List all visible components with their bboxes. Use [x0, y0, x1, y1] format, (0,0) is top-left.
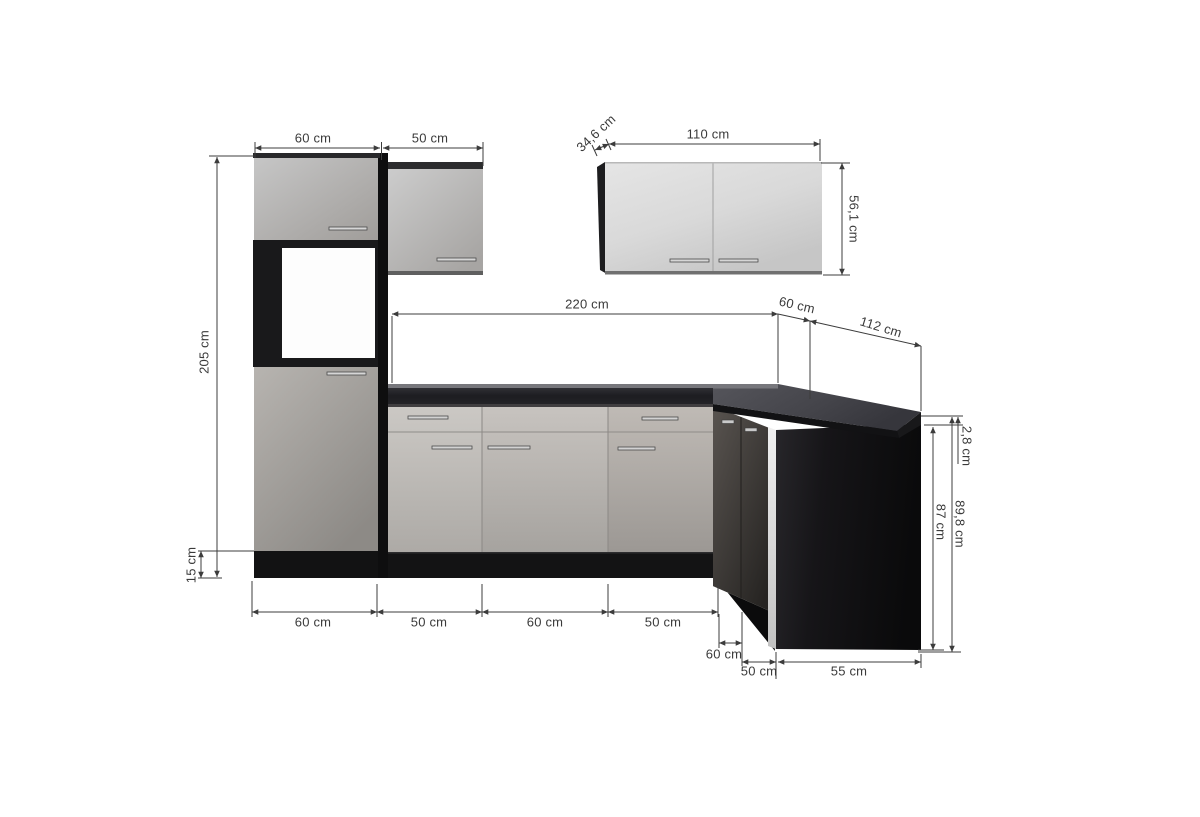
wall-cab-50-door	[388, 169, 483, 272]
corner-unit	[713, 406, 921, 651]
door-handle	[618, 447, 655, 450]
right-side-panel	[776, 424, 921, 650]
dim-label-run-length: 220 cm	[565, 297, 609, 312]
dim-label-base-seg-3: 60 cm	[527, 615, 563, 630]
panel-edge-strip	[768, 427, 776, 649]
dim-label-tall-cab-height: 205 cm	[197, 330, 212, 374]
wall-cab-110-top-line	[605, 162, 822, 164]
tall-cabinet-plinth	[254, 551, 378, 578]
drawer-handle	[642, 417, 678, 420]
dim-label-wall-cab-110-height: 56,1 cm	[847, 195, 862, 243]
tall-cabinet-side-panel	[378, 153, 388, 578]
dim-label-worktop-thickness: 2,8 cm	[960, 426, 975, 466]
base-plinth	[388, 552, 714, 578]
base-cabinet-60-sink	[482, 407, 608, 552]
wall-cab-50-top-edge	[388, 162, 483, 169]
door-handle	[432, 446, 472, 449]
worktop-top-edge	[372, 384, 778, 389]
base-cabinet-50-1	[388, 407, 482, 552]
wall-cabinet-50	[388, 162, 483, 275]
door-handle	[719, 259, 758, 262]
wall-cab-50-bottom-edge	[388, 271, 483, 275]
tall-cabinet-top-edge	[253, 153, 380, 158]
tall-cabinet-lower-door	[254, 367, 378, 551]
dim-label-tall-cab-width: 60 cm	[295, 131, 331, 146]
door-handle	[327, 372, 366, 375]
base-cabinet-run	[388, 404, 714, 578]
base-top-gap	[388, 404, 713, 407]
corner-door-handle	[722, 420, 734, 424]
door-handle	[670, 259, 709, 262]
dim-label-wall-cab-110-width: 110 cm	[687, 127, 730, 142]
dim-label-total-base-height: 89,8 cm	[953, 500, 968, 548]
wall-cabinet-110	[597, 162, 822, 275]
kitchen-dimension-diagram: 60 cm 50 cm 34,6 cm 110 cm 56,1 cm 205 c…	[0, 0, 1200, 817]
dim-label-wall-cab-50-width: 50 cm	[412, 131, 448, 146]
dim-label-base-seg-4: 50 cm	[645, 615, 681, 630]
dim-label-side-panel-depth: 55 cm	[831, 664, 867, 679]
dim-label-base-seg-1: 60 cm	[295, 615, 331, 630]
tall-cabinet	[253, 153, 388, 578]
door-handle	[329, 227, 367, 230]
plinth-top-edge	[388, 552, 714, 554]
wall-cab-110-bottom-edge	[605, 271, 822, 275]
dim-label-base-seg-2: 50 cm	[411, 615, 447, 630]
dim-label-plinth-height: 15 cm	[184, 547, 199, 583]
dim-label-base-cab-height: 87 cm	[934, 504, 949, 540]
corner-door-handle	[745, 428, 757, 432]
base-cabinet-50-2	[608, 407, 713, 552]
drawer-handle	[408, 416, 448, 419]
dim-label-corner-bottom-depth: 60 cm	[706, 647, 742, 662]
appliance-niche-opening	[282, 248, 375, 358]
corner-cabinet-front	[713, 406, 772, 612]
door-handle	[437, 258, 476, 261]
door-handle	[488, 446, 530, 449]
worktop-main-face	[371, 388, 713, 404]
dim-label-corner-bottom-width: 50 cm	[741, 664, 777, 679]
